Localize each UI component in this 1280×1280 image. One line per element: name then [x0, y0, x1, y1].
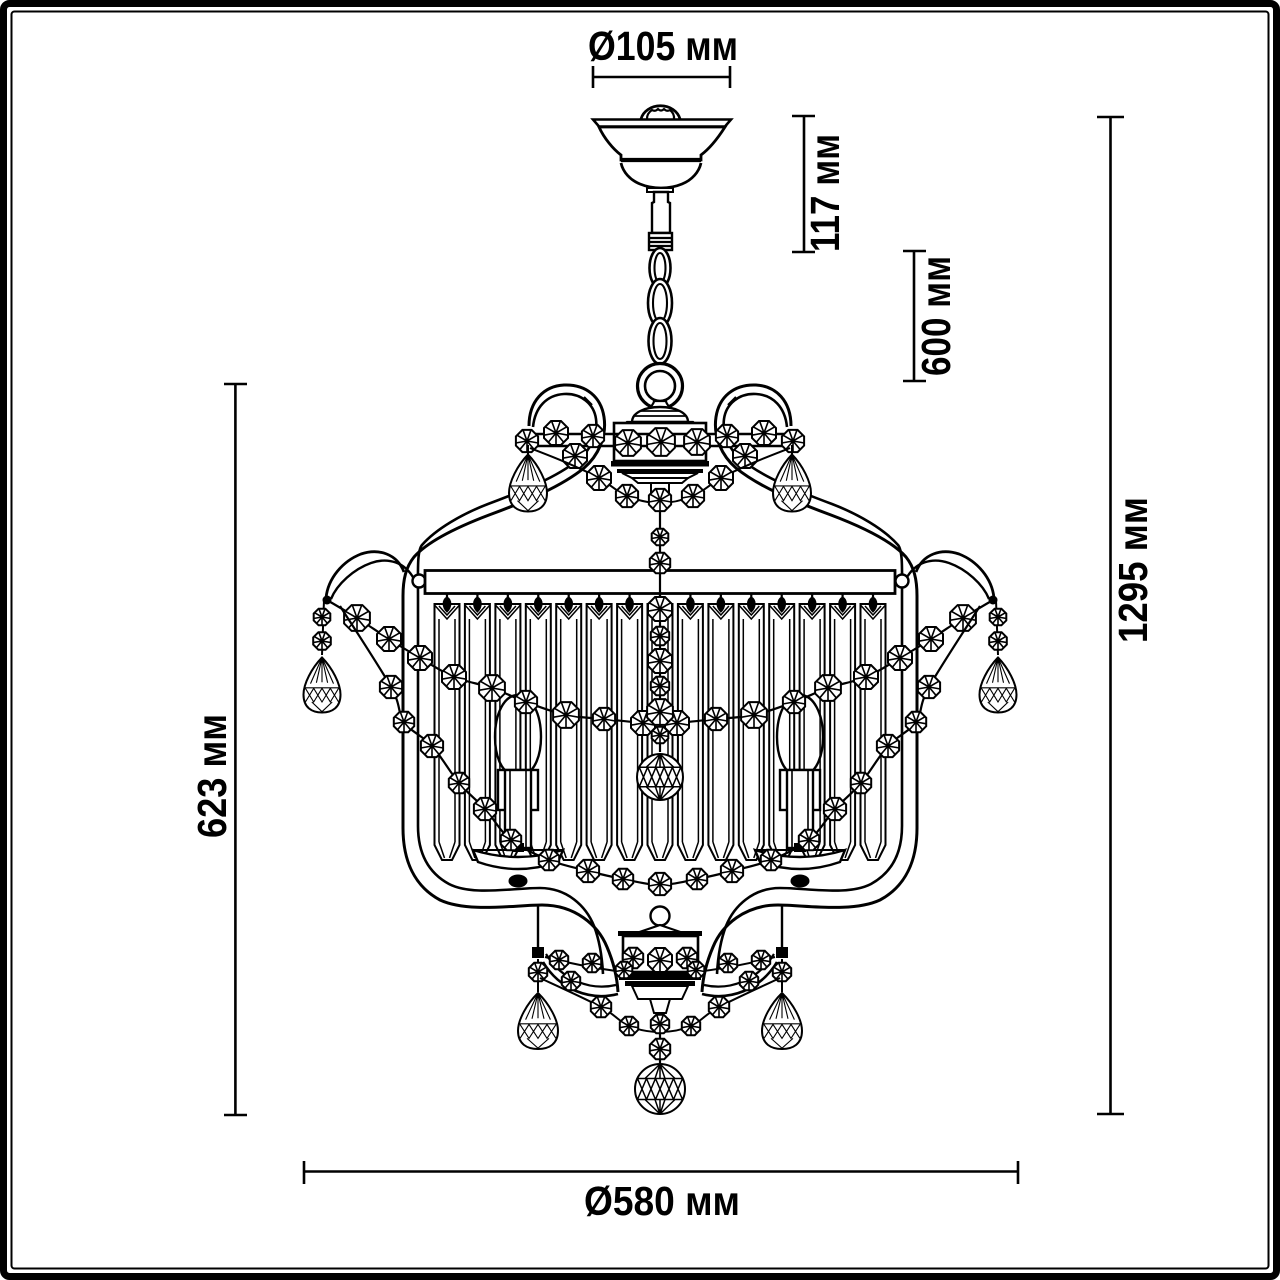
- svg-text:623 мм: 623 мм: [189, 714, 235, 838]
- svg-text:117 мм: 117 мм: [802, 134, 848, 252]
- svg-text:600 мм: 600 мм: [913, 256, 959, 376]
- svg-text:1295 мм: 1295 мм: [1110, 497, 1156, 643]
- svg-text:Ø580 мм: Ø580 мм: [584, 1178, 740, 1224]
- svg-text:Ø105 мм: Ø105 мм: [588, 23, 738, 69]
